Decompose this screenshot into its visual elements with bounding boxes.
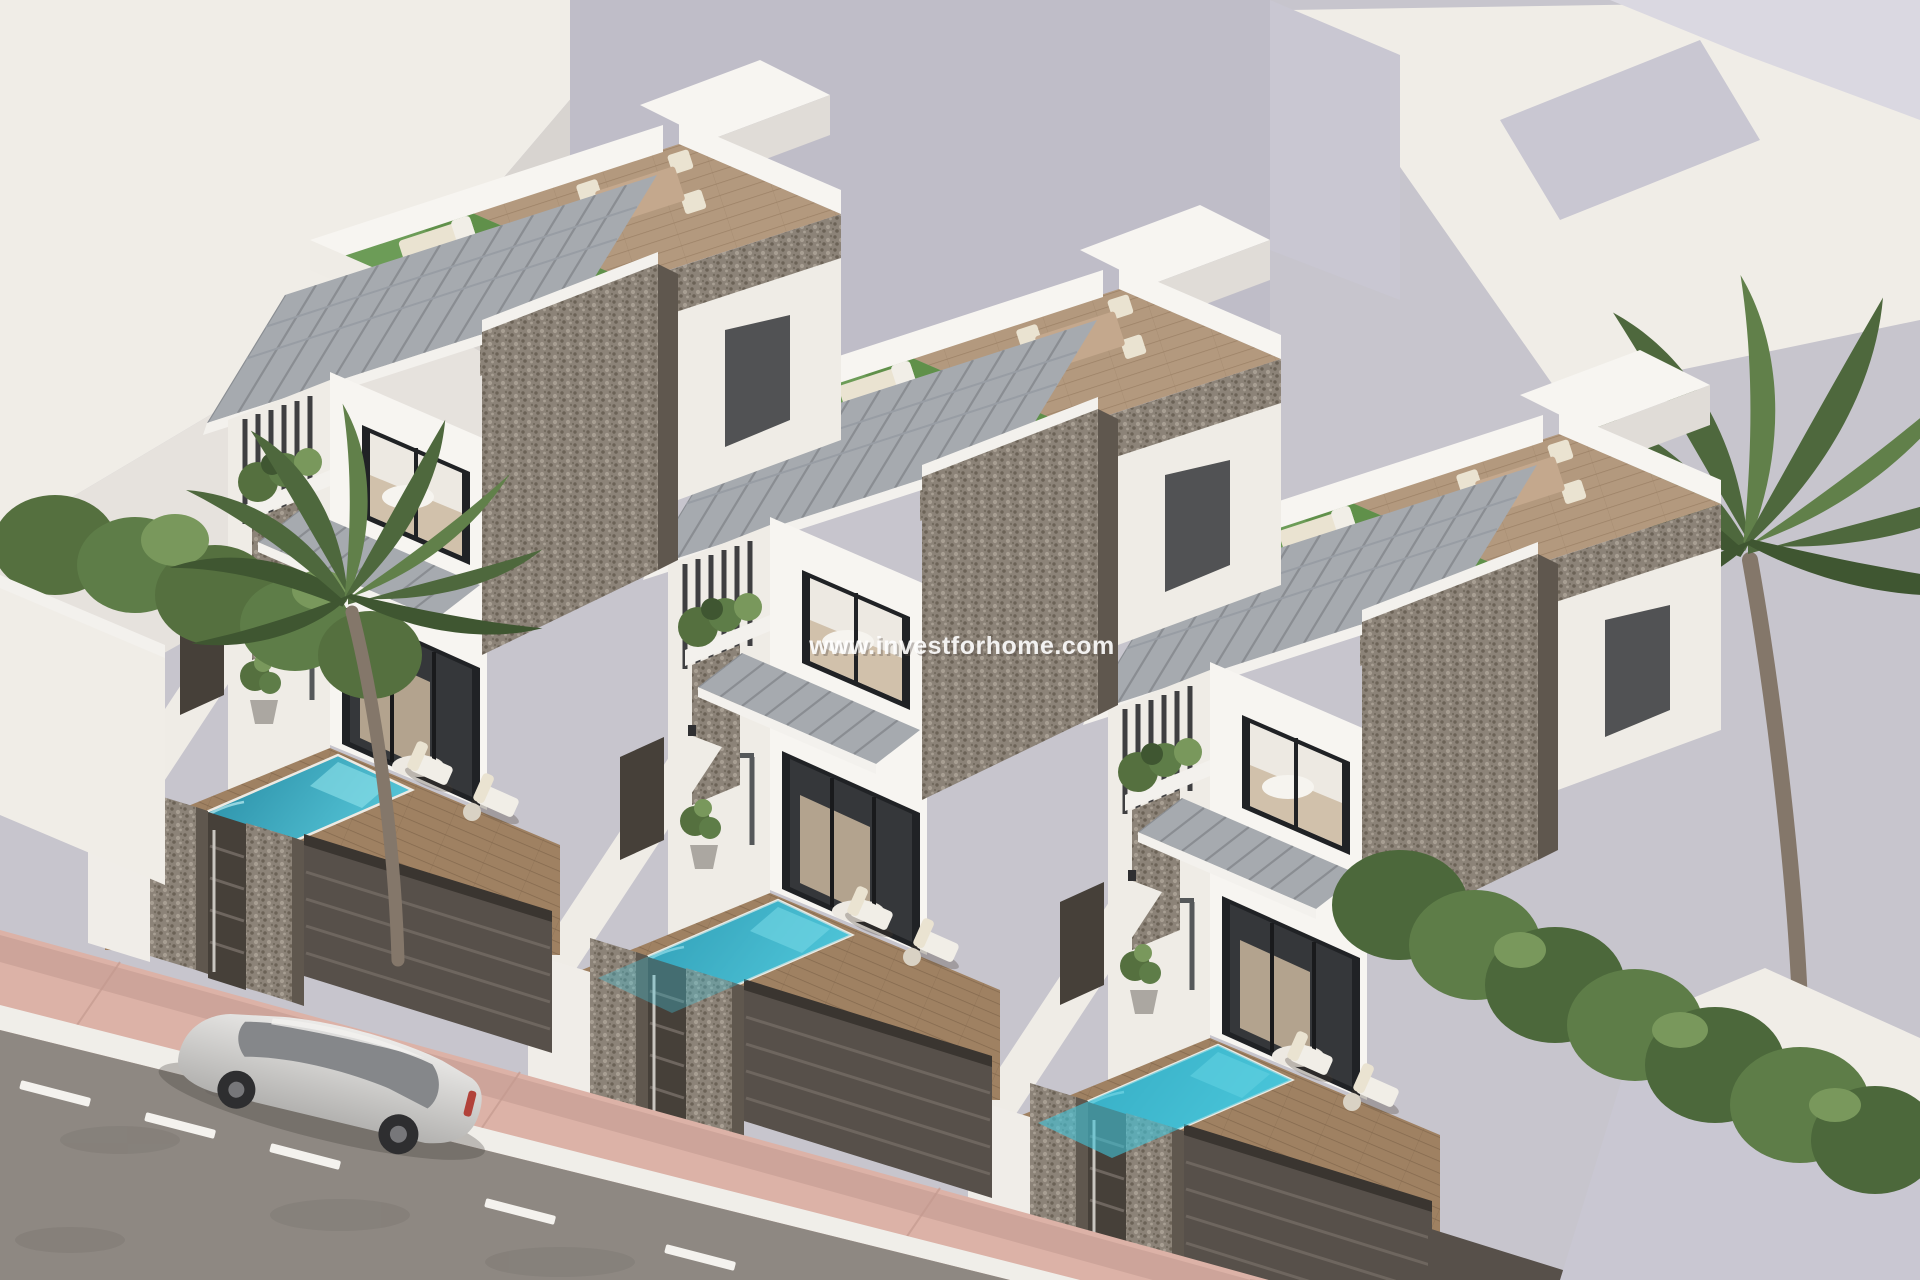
watermark: www.investforhome.com www.investforhome.… bbox=[808, 632, 1116, 662]
render-image: www.investforhome.com www.investforhome.… bbox=[0, 0, 1920, 1280]
watermark-text: www.investforhome.com bbox=[808, 632, 1114, 660]
